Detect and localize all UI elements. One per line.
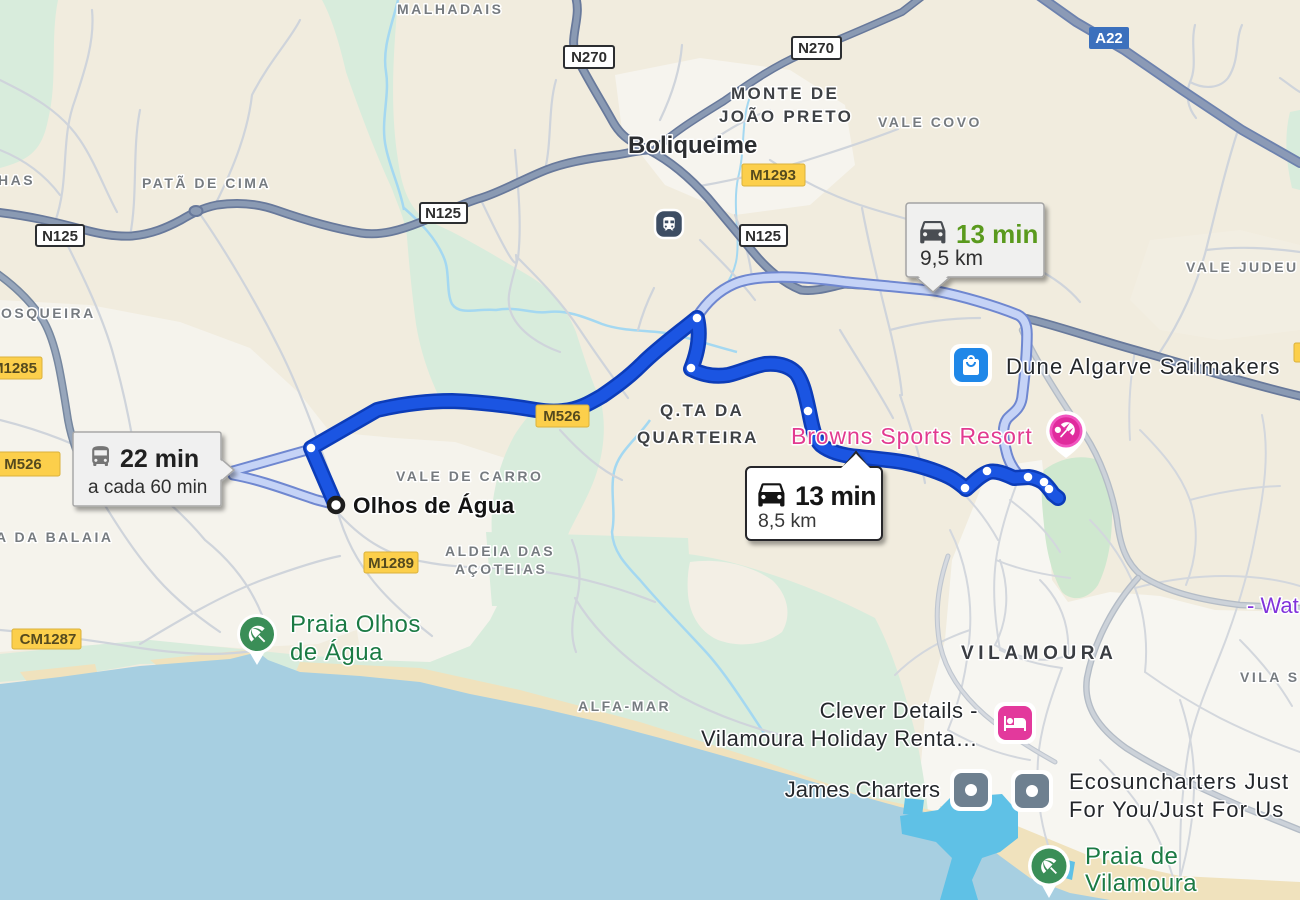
- svg-text:VILAMOURA: VILAMOURA: [961, 643, 1117, 664]
- svg-text:For You/Just For Us: For You/Just For Us: [1069, 797, 1284, 822]
- svg-text:HAS: HAS: [0, 172, 35, 188]
- svg-text:N125: N125: [745, 228, 781, 245]
- svg-text:de Água: de Água: [290, 639, 383, 666]
- svg-text:Praia Olhos: Praia Olhos: [290, 611, 421, 638]
- svg-text:Q.TA DA: Q.TA DA: [660, 401, 744, 420]
- svg-text:PATÃ DE CIMA: PATÃ DE CIMA: [142, 174, 271, 191]
- svg-text:9,5 km: 9,5 km: [920, 247, 983, 270]
- svg-text:A22: A22: [1095, 30, 1123, 47]
- svg-text:M526: M526: [4, 456, 42, 473]
- svg-text:Clever Details -: Clever Details -: [820, 698, 978, 723]
- svg-text:- Wat: - Wat: [1247, 593, 1299, 618]
- svg-text:OSQUEIRA: OSQUEIRA: [1, 305, 96, 321]
- svg-text:N125: N125: [425, 205, 461, 222]
- svg-text:James Charters: James Charters: [785, 777, 940, 802]
- svg-text:VALE JUDEU: VALE JUDEU: [1186, 259, 1299, 275]
- svg-text:22 min: 22 min: [120, 445, 199, 473]
- svg-text:N270: N270: [571, 49, 607, 66]
- svg-text:Ecosuncharters Just: Ecosuncharters Just: [1069, 769, 1289, 794]
- svg-text:Praia de: Praia de: [1085, 843, 1178, 870]
- svg-text:ALFA-MAR: ALFA-MAR: [578, 698, 671, 714]
- svg-text:a cada 60 min: a cada 60 min: [88, 477, 207, 498]
- svg-text:Dune Algarve Sailmakers: Dune Algarve Sailmakers: [1006, 354, 1281, 379]
- svg-text:MALHADAIS: MALHADAIS: [397, 1, 504, 17]
- svg-text:VILA S: VILA S: [1240, 669, 1300, 685]
- svg-text:AÇOTEIAS: AÇOTEIAS: [455, 561, 547, 577]
- svg-text:VALE COVO: VALE COVO: [878, 114, 982, 130]
- svg-text:Vilamoura Holiday Renta…: Vilamoura Holiday Renta…: [701, 726, 978, 751]
- svg-text:A DA BALAIA: A DA BALAIA: [0, 529, 113, 545]
- svg-text:QUARTEIRA: QUARTEIRA: [637, 428, 759, 447]
- svg-text:N125: N125: [42, 228, 78, 245]
- svg-text:Boliqueime: Boliqueime: [628, 132, 757, 159]
- svg-text:N270: N270: [798, 40, 834, 57]
- svg-text:M1293: M1293: [750, 167, 796, 184]
- svg-text:8,5 km: 8,5 km: [758, 510, 817, 532]
- svg-text:Browns Sports Resort: Browns Sports Resort: [791, 423, 1033, 449]
- svg-text:MONTE DE: MONTE DE: [731, 84, 839, 103]
- svg-text:JOÃO PRETO: JOÃO PRETO: [719, 106, 853, 126]
- svg-text:Olhos de Água: Olhos de Água: [353, 493, 515, 518]
- svg-text:13 min: 13 min: [795, 481, 876, 511]
- svg-text:Vilamoura: Vilamoura: [1085, 870, 1197, 897]
- svg-text:VALE DE CARRO: VALE DE CARRO: [396, 468, 543, 484]
- svg-text:13 min: 13 min: [956, 219, 1038, 249]
- svg-text:M526: M526: [543, 408, 581, 425]
- svg-text:M1285: M1285: [0, 360, 37, 377]
- svg-text:M1289: M1289: [368, 555, 414, 572]
- svg-text:ALDEIA DAS: ALDEIA DAS: [445, 543, 555, 559]
- svg-text:CM1287: CM1287: [20, 631, 77, 648]
